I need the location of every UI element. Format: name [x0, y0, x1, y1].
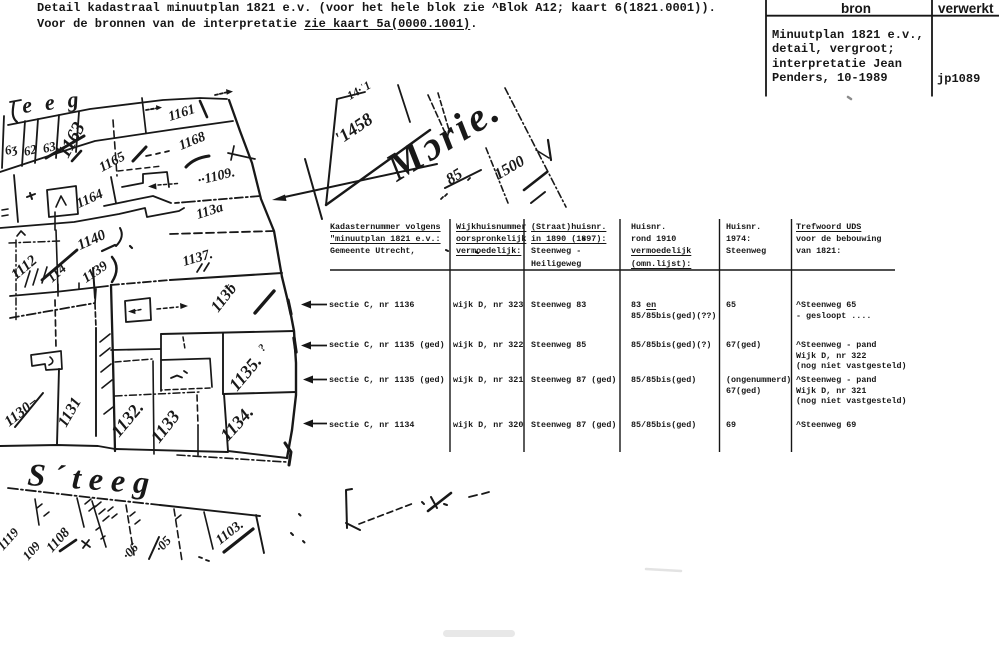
svg-text:S´teeg: S´teeg	[27, 456, 159, 501]
svg-text:1135.: 1135.	[225, 351, 266, 394]
svg-text:1168: 1168	[177, 130, 208, 154]
svg-text:1103.: 1103.	[213, 517, 246, 548]
svg-text:1139: 1139	[80, 259, 111, 287]
svg-text:1163: 1163	[54, 119, 90, 161]
svg-text:?: ?	[256, 342, 269, 354]
svg-text:1131: 1131	[55, 395, 85, 430]
svg-text:113ɑ: 113ɑ	[195, 200, 226, 223]
svg-text:··1109.: ··1109.	[196, 165, 236, 189]
svg-text:6ʒ: 6ʒ	[3, 140, 19, 158]
svg-text:1164: 1164	[75, 187, 106, 212]
svg-text:eeg: eeg	[21, 85, 93, 118]
svg-text:1130−: 1130−	[2, 394, 42, 430]
svg-text:1165: 1165	[97, 150, 128, 176]
svg-text:113ƀ: 113ƀ	[208, 280, 241, 315]
svg-text:ʹ1458: ʹ1458	[331, 109, 376, 149]
svg-text:1137.: 1137.	[181, 247, 215, 270]
svg-text:1134.: 1134.	[216, 402, 257, 445]
svg-text:·06: ·06	[119, 540, 141, 562]
svg-text:109: 109	[19, 538, 44, 563]
svg-text:1108: 1108	[44, 525, 73, 555]
svg-text:1161: 1161	[167, 102, 198, 125]
svg-text:1500: 1500	[492, 153, 528, 184]
svg-text:85: 85	[443, 165, 466, 188]
svg-text:14·ˈ1: 14·ˈ1	[345, 78, 374, 103]
svg-text:·05: ·05	[152, 533, 174, 555]
svg-text:1119: 1119	[0, 524, 22, 553]
svg-text:1133: 1133	[146, 407, 183, 447]
